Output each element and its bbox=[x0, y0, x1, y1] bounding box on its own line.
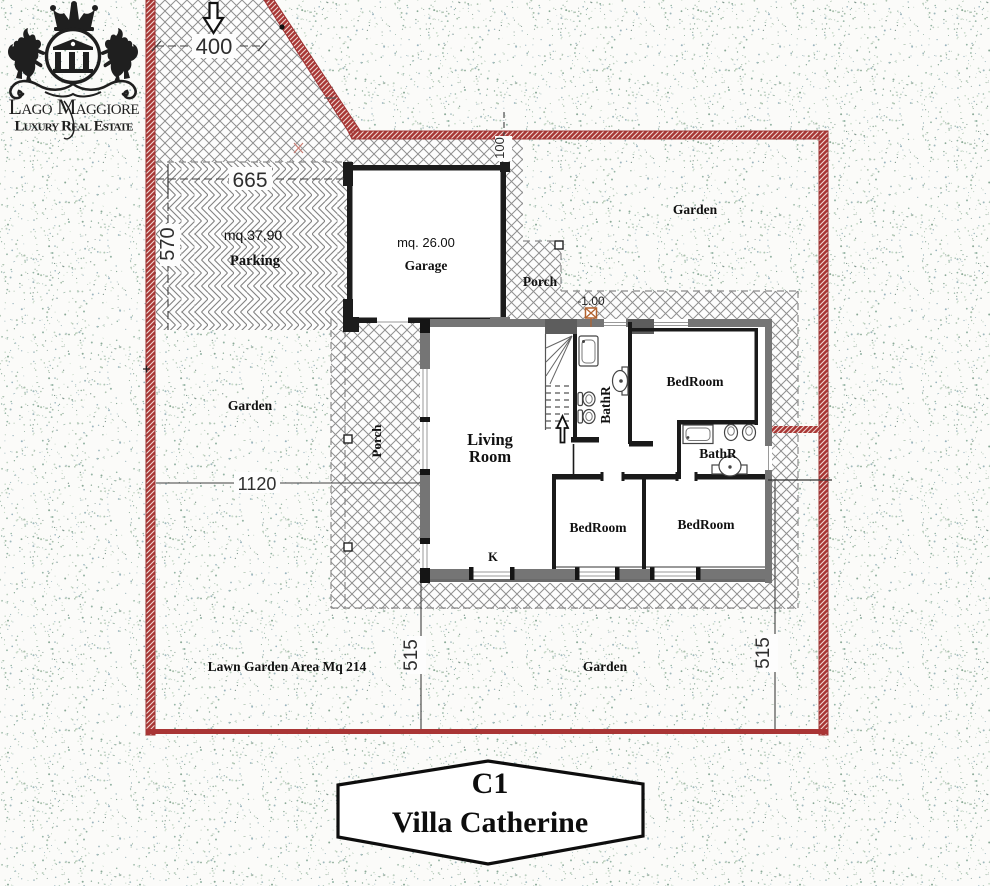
svg-text:Room: Room bbox=[469, 447, 511, 466]
svg-text:BathR: BathR bbox=[598, 386, 613, 424]
svg-text:BedRoom: BedRoom bbox=[678, 517, 736, 532]
svg-text:515: 515 bbox=[401, 639, 422, 671]
svg-text:Porch: Porch bbox=[523, 274, 558, 289]
svg-text:Garden: Garden bbox=[583, 659, 628, 674]
svg-text:Lago Maggiore: Lago Maggiore bbox=[9, 94, 140, 119]
svg-text:665: 665 bbox=[232, 169, 267, 192]
svg-text:Garden: Garden bbox=[228, 398, 273, 413]
svg-text:BathR: BathR bbox=[699, 446, 737, 461]
svg-text:-1.00: -1.00 bbox=[577, 294, 605, 308]
svg-text:Lawn Garden Area Mq 214: Lawn Garden Area Mq 214 bbox=[208, 659, 367, 674]
svg-text:BedRoom: BedRoom bbox=[667, 374, 725, 389]
svg-text:BedRoom: BedRoom bbox=[570, 520, 628, 535]
svg-text:100: 100 bbox=[492, 137, 507, 159]
svg-text:mq.37,90: mq.37,90 bbox=[224, 227, 283, 243]
svg-text:C1: C1 bbox=[472, 767, 509, 800]
svg-text:570: 570 bbox=[157, 227, 179, 260]
svg-text:515: 515 bbox=[753, 637, 774, 669]
svg-text:mq. 26.00: mq. 26.00 bbox=[397, 235, 455, 250]
svg-text:1120: 1120 bbox=[238, 474, 277, 494]
svg-text:Villa Catherine: Villa Catherine bbox=[392, 806, 588, 839]
svg-text:Garden: Garden bbox=[673, 202, 718, 217]
svg-text:Porch: Porch bbox=[369, 424, 384, 458]
svg-text:Parking: Parking bbox=[230, 253, 281, 269]
svg-text:400: 400 bbox=[196, 34, 233, 59]
svg-text:Garage: Garage bbox=[405, 258, 448, 273]
svg-text:K: K bbox=[488, 550, 498, 564]
